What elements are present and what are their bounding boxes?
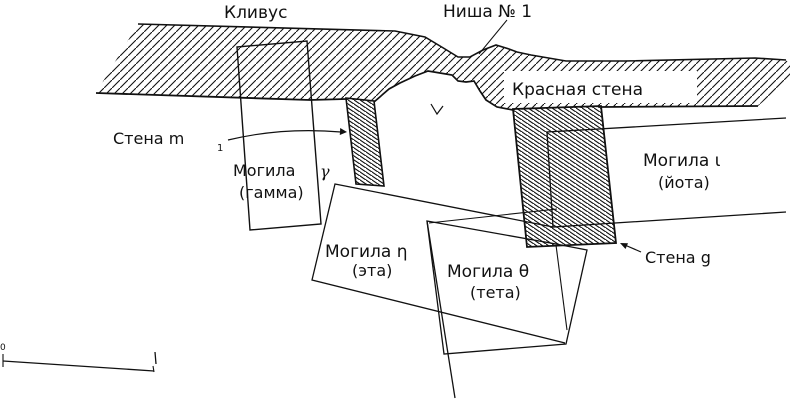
grave-iota-label: Могила ι bbox=[643, 151, 721, 171]
wall-g-arrow bbox=[620, 243, 641, 252]
scale-zero-label: 0 bbox=[0, 343, 6, 353]
niche-check-mark bbox=[431, 104, 443, 114]
red-wall-label: Красная стена bbox=[512, 80, 643, 100]
grave-iota-label-alt: (йота) bbox=[658, 173, 710, 192]
wall-m1-arrow bbox=[228, 128, 347, 140]
band-bottom-edge-right bbox=[601, 106, 758, 107]
archaeological-plan: Красная стена 0 Кливус Ниша № 1 Стена m … bbox=[0, 0, 790, 401]
grave-eta-label: Могила η bbox=[325, 242, 408, 262]
wall-m1-shape bbox=[346, 98, 384, 186]
grave-theta-label: Могила θ bbox=[447, 262, 529, 282]
grave-theta-label-alt: (тета) bbox=[470, 283, 521, 302]
grave-theta-sketch-line-right bbox=[556, 245, 567, 330]
wall-m1-label-subscript: 1 bbox=[217, 143, 223, 154]
scale-bar bbox=[3, 352, 156, 372]
grave-eta-label-alt: (эта) bbox=[352, 261, 392, 280]
grave-gamma-label-letter: γ bbox=[320, 162, 330, 181]
niche-label: Ниша № 1 bbox=[443, 2, 532, 22]
wall-m1-label: Стена m bbox=[113, 129, 184, 148]
wall-g-shape bbox=[513, 106, 616, 247]
grave-gamma-label-word: Могила bbox=[233, 161, 295, 180]
grave-gamma-label-alt: (гамма) bbox=[239, 183, 304, 202]
clivus-label: Кливус bbox=[224, 3, 287, 23]
wall-g-label: Стена g bbox=[645, 248, 711, 267]
